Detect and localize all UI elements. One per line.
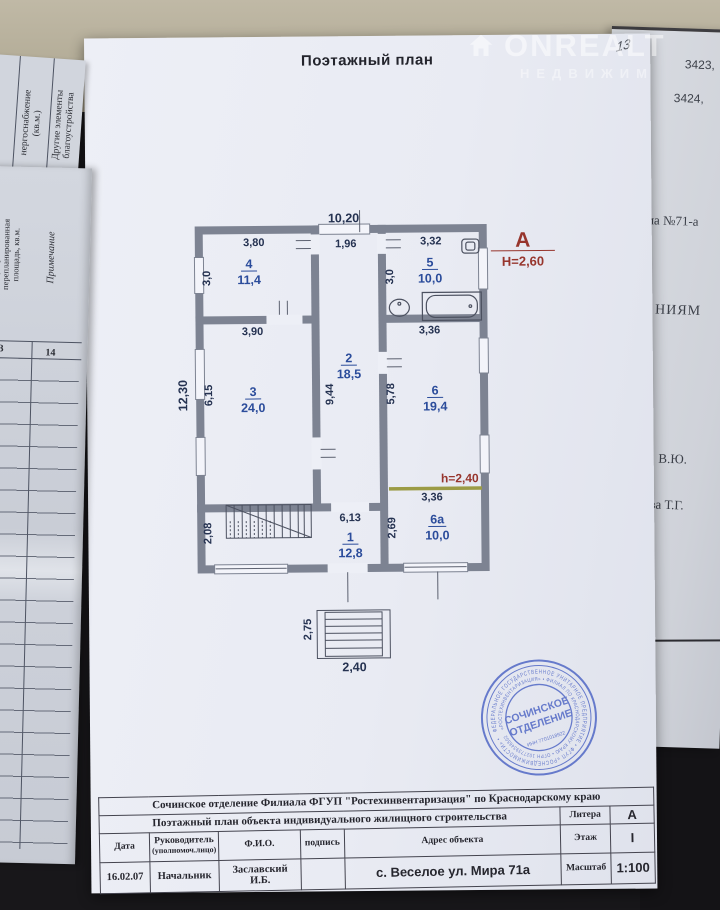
column-header-vertical: Примечание <box>44 175 60 339</box>
scale-label: Масштаб <box>561 853 612 885</box>
text-fragment: НИЯМ <box>655 302 701 319</box>
dim-label: 2,69 <box>386 517 398 539</box>
date-value: 16.02.07 <box>100 862 150 894</box>
dim-label: 6,15 <box>203 385 215 407</box>
dim-label: 3,90 <box>242 326 264 338</box>
floor-value: I <box>610 823 655 853</box>
room-number: 4 <box>245 257 252 271</box>
sink-icon <box>389 299 409 316</box>
head-value: Начальник <box>150 860 220 892</box>
room-number: 6 <box>432 383 439 397</box>
dim-label: 3,0 <box>384 269 396 284</box>
head-label: Руководитель(уполномоч.лицо) <box>149 831 219 861</box>
dim-label: 3,0 <box>201 271 213 286</box>
signature-label: подпись <box>300 829 345 859</box>
dim-label: 6,13 <box>339 512 361 524</box>
room-number: 5 <box>426 255 433 269</box>
room-number: 2 <box>345 351 352 365</box>
entrance-steps <box>317 610 390 659</box>
empty-table-rows <box>0 358 79 850</box>
dim-label: 5,78 <box>385 383 397 405</box>
date-label: Дата <box>99 833 149 863</box>
page-number-fragment: 3423, <box>685 57 715 72</box>
door-opening <box>310 234 320 254</box>
column-header-vertical: переустроенная или перепланированная пло… <box>0 174 23 335</box>
room-number: 6a <box>430 512 445 526</box>
door-opening <box>328 563 368 573</box>
room-number: 1 <box>347 530 354 544</box>
house-number-fragment: ма №71-а <box>646 212 699 230</box>
signature-cell <box>301 858 346 890</box>
page-number-fragment: 3424, <box>674 91 704 106</box>
dim-label: 3,36 <box>421 491 443 503</box>
building-height-label: Н=2,60 <box>502 253 544 268</box>
address-label: Адрес объекта <box>344 825 561 858</box>
door-opening <box>331 502 369 512</box>
column-number: 14 <box>45 347 55 358</box>
dim-label: 2,40 <box>342 660 366 674</box>
dim-label: 10,20 <box>328 211 359 225</box>
height-change-line <box>389 488 482 489</box>
door-opening <box>378 352 388 374</box>
room-area: 12,8 <box>338 546 362 560</box>
dim-label: 2,08 <box>202 523 214 545</box>
window <box>196 437 205 475</box>
floor-plan-sheet: Поэтажный план 13 <box>84 34 657 894</box>
window <box>480 435 489 473</box>
column-number: 13 <box>0 343 4 354</box>
inner-height-label: h=2,40 <box>441 471 479 485</box>
room-area: 10,0 <box>418 271 442 285</box>
page-title: Поэтажный план <box>84 50 650 72</box>
bathtub-icon <box>469 305 472 308</box>
window <box>479 338 488 373</box>
door-opening <box>312 437 322 469</box>
room-area: 11,4 <box>237 273 261 287</box>
dim-label: 2,75 <box>302 619 314 641</box>
fio-label: Ф.И.О. <box>218 830 300 861</box>
window-top <box>319 224 370 234</box>
toilet-icon <box>466 242 475 250</box>
building-letter: А <box>515 229 530 252</box>
room-area: 10,0 <box>425 528 449 542</box>
dim-label: 3,36 <box>419 324 441 336</box>
dim-label: 9,44 <box>324 383 336 405</box>
floor-label: Этаж <box>560 824 610 854</box>
room-area: 24,0 <box>241 401 265 415</box>
room-area: 18,5 <box>337 367 361 381</box>
litera-value: А <box>610 805 654 824</box>
dim-label: 12,30 <box>176 380 190 411</box>
underlying-page-left-bottom: переустроенная или перепланированная пло… <box>0 166 92 864</box>
sink-icon <box>398 302 401 305</box>
litera-label: Литера <box>560 806 610 825</box>
initials-fragment: В.Ю. <box>658 451 687 468</box>
address-value: с. Веселое ул. Мира 71а <box>345 854 562 889</box>
dim-label: 1,96 <box>335 238 357 250</box>
scale-value: 1:100 <box>611 852 656 884</box>
column-header-vertical: нергоснабжение(кв.м.) <box>17 62 47 183</box>
dim-label: 3,32 <box>420 235 442 247</box>
door-opening <box>377 234 387 254</box>
window <box>478 248 487 289</box>
title-block-table: Сочинское отделение Филиала ФГУП "Ростех… <box>98 787 656 895</box>
room-area: 19,4 <box>423 399 447 413</box>
fio-value: Заславский И.Б. <box>219 859 301 892</box>
door-opening <box>266 315 302 325</box>
dim-label: 3,80 <box>243 237 265 249</box>
wall-room5-room6 <box>382 318 483 319</box>
floor-plan-drawing: А Н=2,60 h=2,40 10,20 3,80 1,96 3,32 3,0… <box>173 202 577 685</box>
room-number: 3 <box>250 385 257 399</box>
toilet-icon <box>462 239 479 253</box>
